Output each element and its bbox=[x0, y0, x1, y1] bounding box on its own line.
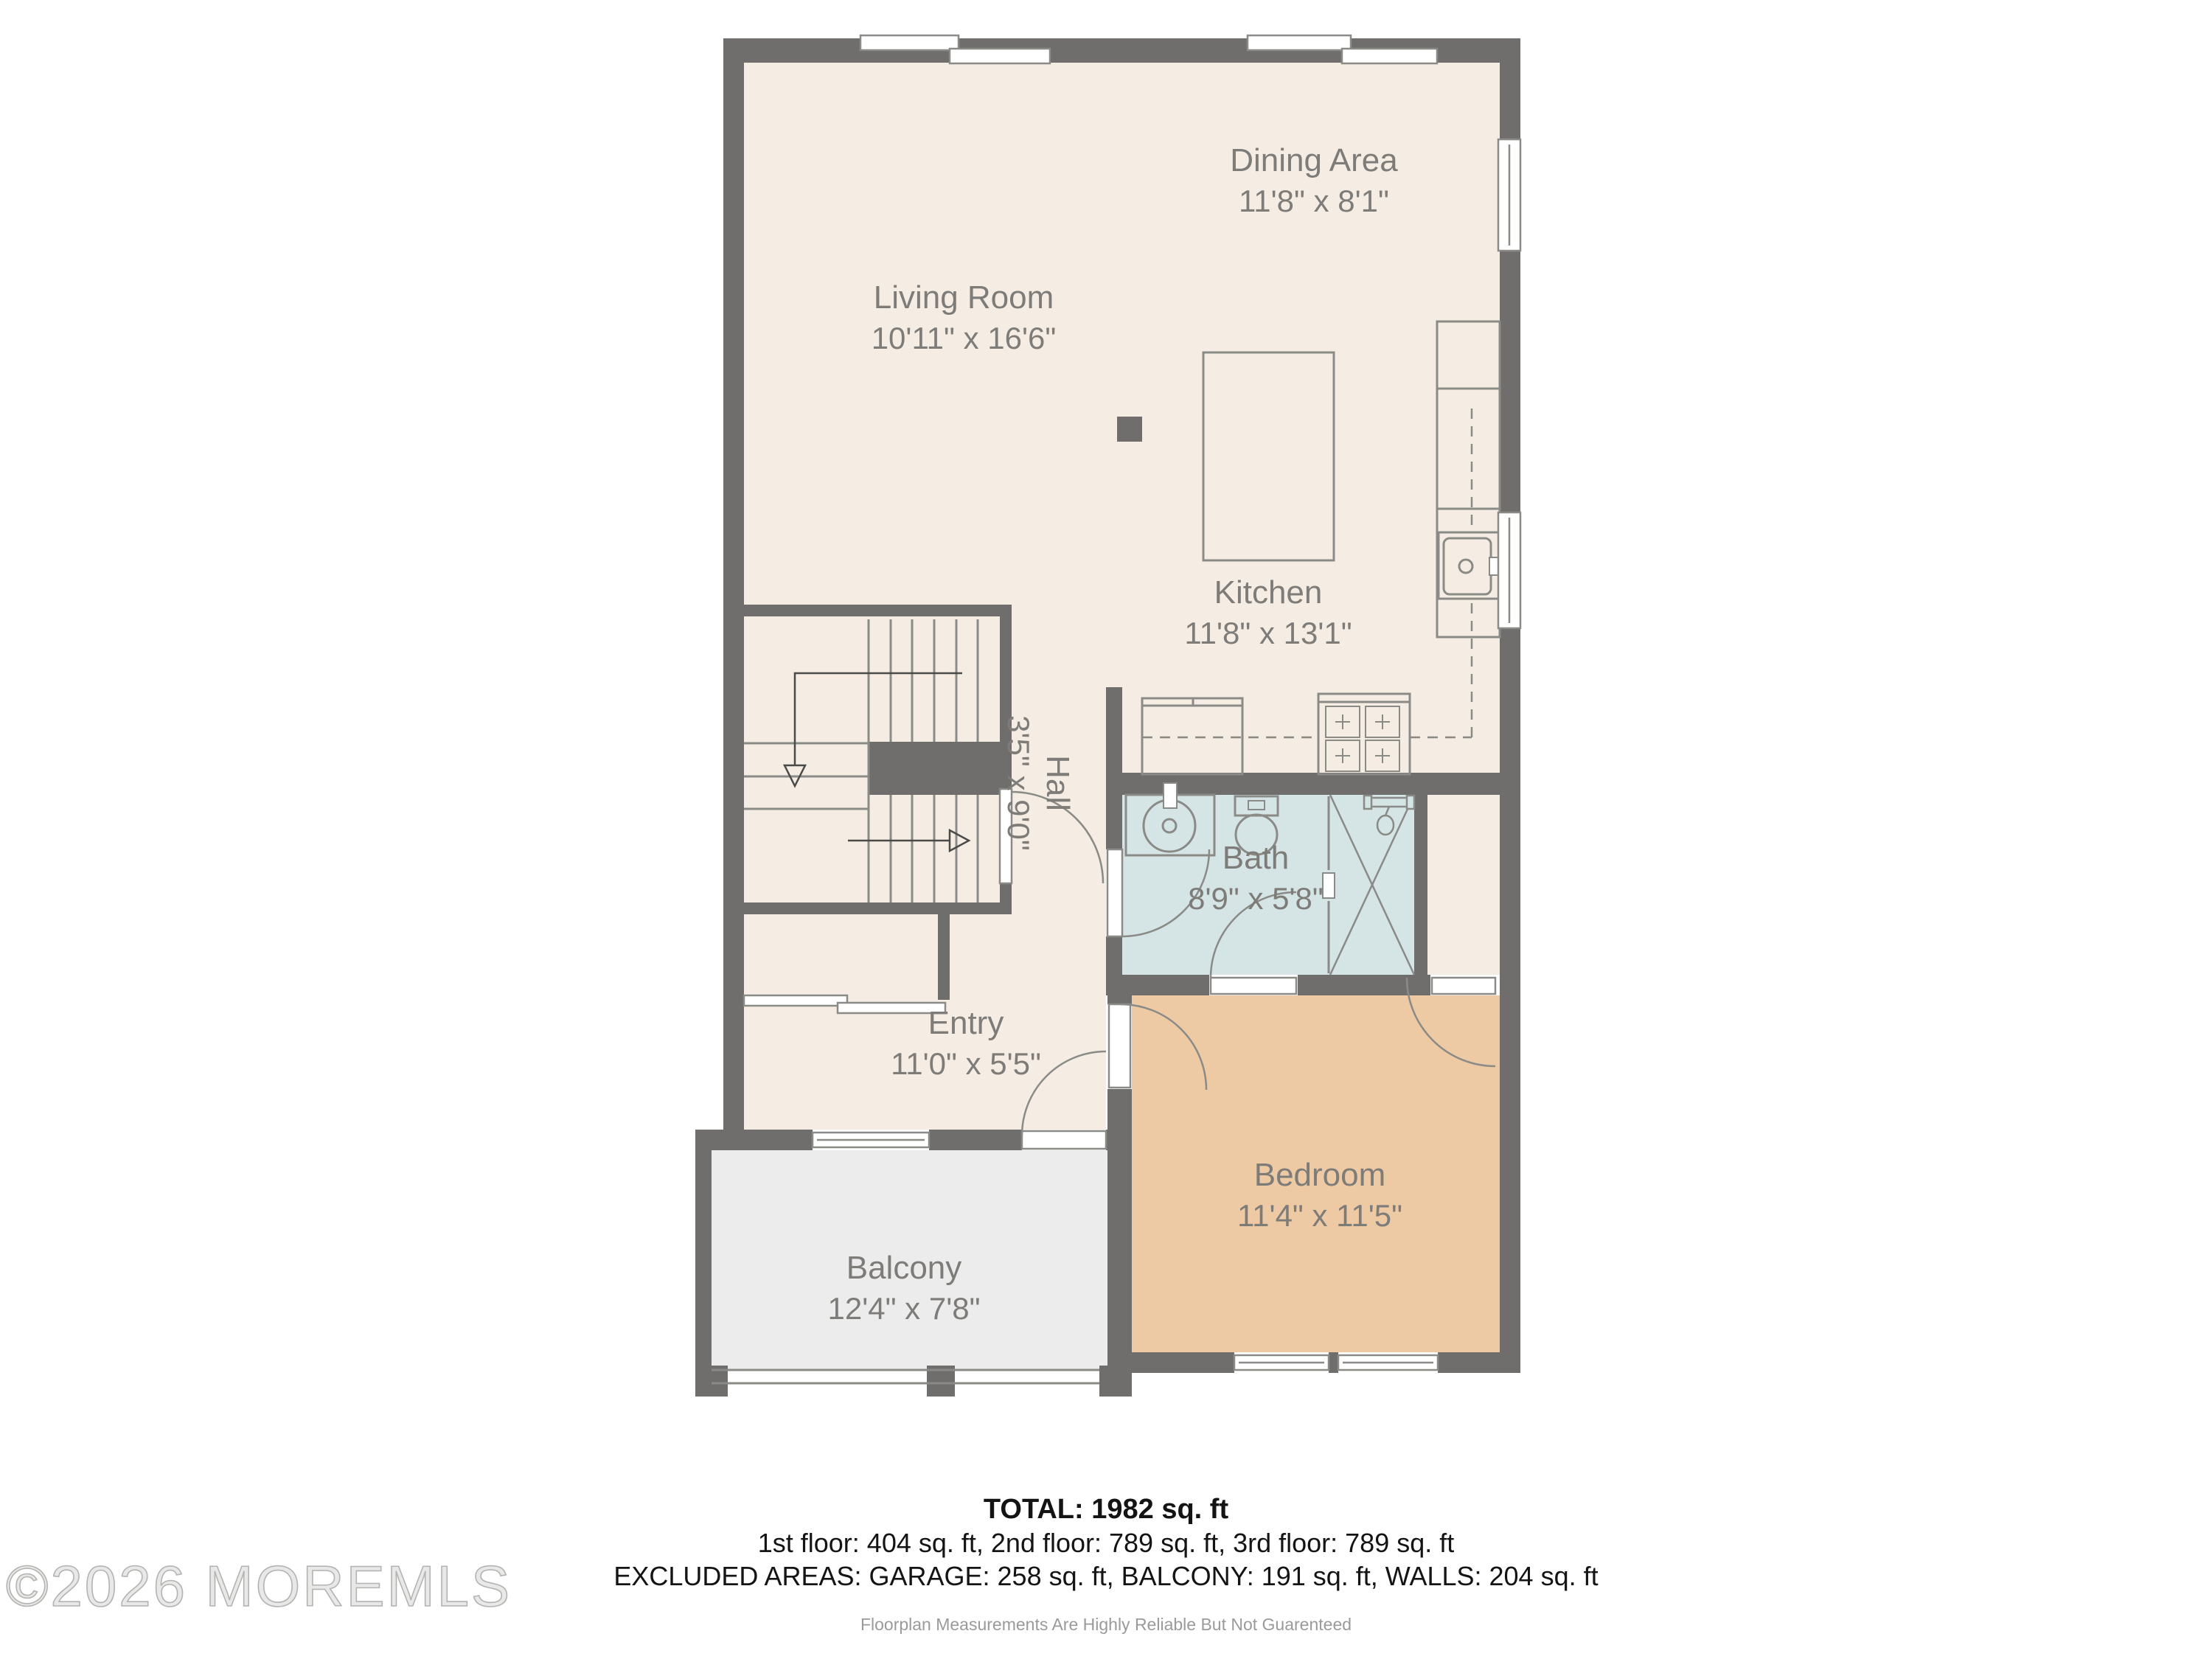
door-bedroom-closet bbox=[1407, 978, 1495, 1066]
window-kitchen-right bbox=[1498, 512, 1520, 628]
room-name: Kitchen bbox=[1184, 572, 1352, 613]
room-dims: 12'4" x 7'8" bbox=[828, 1289, 981, 1329]
room-label-bath: Bath 8'9" x 5'8" bbox=[1188, 838, 1324, 919]
room-dims: 10'11" x 16'6" bbox=[872, 319, 1057, 358]
summary-total: TOTAL: 1982 sq. ft bbox=[0, 1494, 2212, 1526]
room-name: Entry bbox=[891, 1003, 1041, 1044]
room-dims: 11'0" x 5'5" bbox=[891, 1044, 1041, 1084]
window-living-top bbox=[860, 35, 1050, 63]
window-dining-right bbox=[1498, 139, 1520, 251]
sliding-door-dining-top bbox=[1248, 35, 1437, 63]
kitchen-counter-left bbox=[1142, 698, 1242, 774]
stair-treads-lower bbox=[891, 795, 978, 902]
window-bedroom-1 bbox=[1234, 1355, 1329, 1370]
room-name: Bedroom bbox=[1237, 1155, 1402, 1196]
room-label-balcony: Balcony 12'4" x 7'8" bbox=[828, 1248, 981, 1329]
balcony-railing bbox=[712, 1370, 1099, 1383]
room-name: Bath bbox=[1188, 838, 1324, 879]
window-bedroom-2 bbox=[1338, 1355, 1438, 1370]
room-label-living: Living Room 10'11" x 16'6" bbox=[872, 277, 1057, 358]
room-name: Living Room bbox=[872, 277, 1057, 319]
kitchen-sink bbox=[1439, 532, 1506, 599]
room-name: Balcony bbox=[828, 1248, 981, 1289]
room-label-dining: Dining Area 11'8" x 8'1" bbox=[1230, 140, 1397, 221]
stair-winders bbox=[744, 743, 869, 809]
room-dims: 3'5" x 9'0" bbox=[999, 715, 1037, 851]
door-entry-bedroom bbox=[1109, 1004, 1206, 1090]
window-entry bbox=[813, 1133, 929, 1147]
mls-watermark: ©2026 MOREMLS bbox=[6, 1553, 512, 1620]
stove-burners bbox=[1326, 706, 1399, 771]
kitchen-island bbox=[1203, 352, 1334, 560]
plan-linework bbox=[0, 0, 2212, 1659]
room-label-kitchen: Kitchen 11'8" x 13'1" bbox=[1184, 572, 1352, 653]
room-label-hall: Hall 3'5" x 9'0" bbox=[999, 715, 1077, 851]
room-name: Dining Area bbox=[1230, 140, 1397, 181]
room-label-bedroom: Bedroom 11'4" x 11'5" bbox=[1237, 1155, 1402, 1236]
floorplan-page: Living Room 10'11" x 16'6" Dining Area 1… bbox=[0, 0, 2212, 1659]
shower-head-icon bbox=[1364, 796, 1414, 835]
room-label-entry: Entry 11'0" x 5'5" bbox=[891, 1003, 1041, 1084]
room-dims: 11'4" x 11'5" bbox=[1237, 1196, 1402, 1236]
shower bbox=[1323, 795, 1414, 975]
room-dims: 11'8" x 8'1" bbox=[1230, 181, 1397, 221]
chimney-block bbox=[1117, 417, 1142, 442]
room-name: Hall bbox=[1037, 715, 1077, 851]
room-dims: 8'9" x 5'8" bbox=[1188, 879, 1324, 919]
stair-landing bbox=[869, 742, 1012, 795]
room-dims: 11'8" x 13'1" bbox=[1184, 613, 1352, 653]
